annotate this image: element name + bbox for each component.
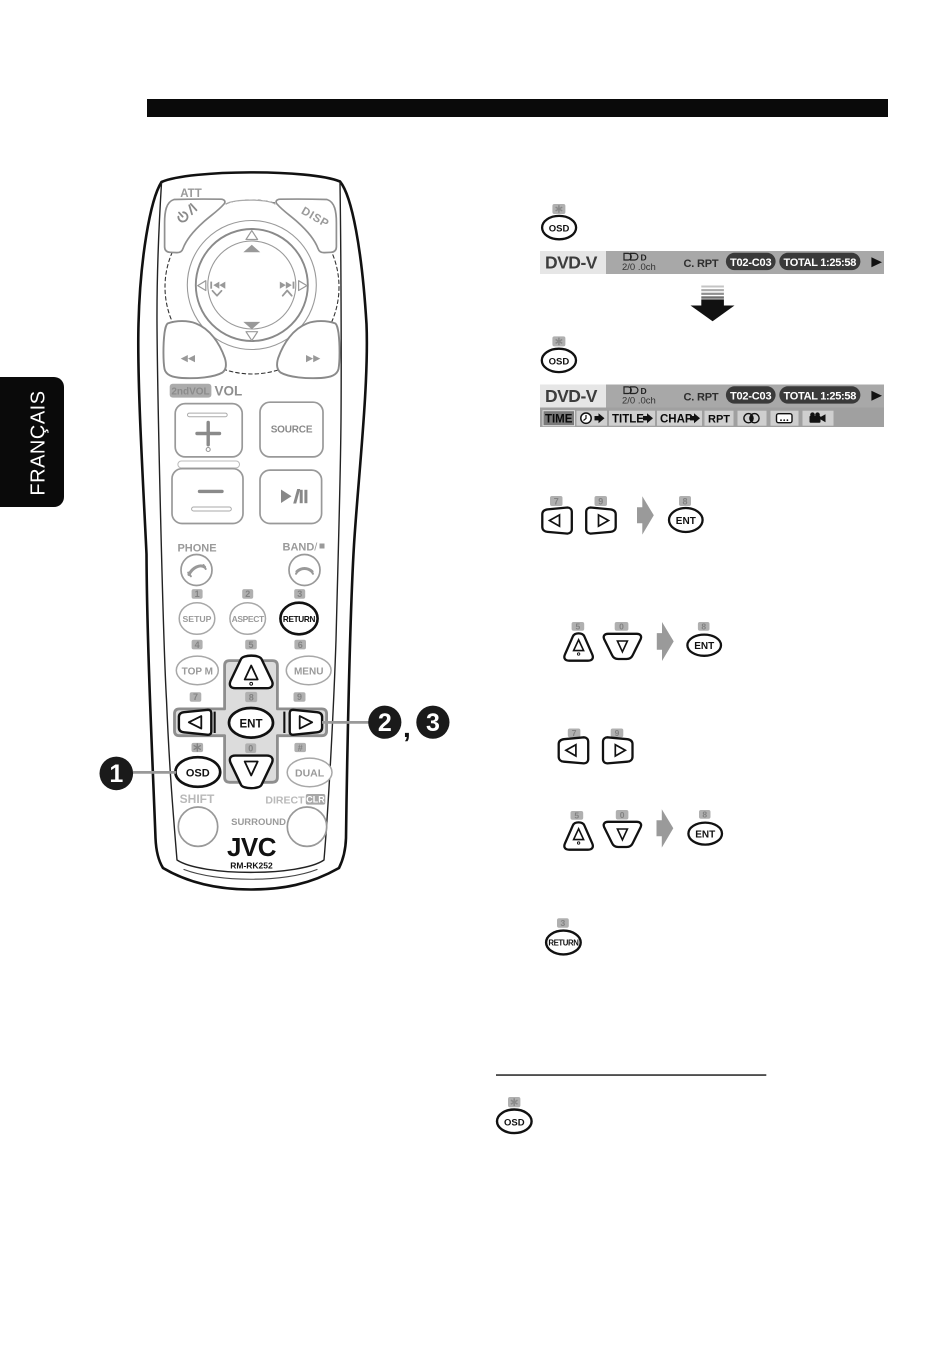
svg-text:ENT: ENT (676, 516, 696, 527)
svg-text:OSD: OSD (549, 356, 570, 367)
svg-text:7: 7 (572, 728, 577, 738)
svg-text:PHONE: PHONE (177, 543, 216, 555)
svg-text:OSD: OSD (504, 1117, 525, 1128)
svg-text:1: 1 (109, 760, 123, 788)
svg-text:BAND/: BAND/ (283, 542, 319, 554)
svg-text:3: 3 (426, 709, 440, 737)
svg-text:SETUP: SETUP (183, 614, 212, 624)
svg-text:T02-C03: T02-C03 (730, 257, 771, 269)
svg-text:TOTAL 1:25:58: TOTAL 1:25:58 (784, 257, 857, 269)
svg-text:ENT: ENT (694, 641, 714, 652)
svg-text:0: 0 (619, 622, 624, 632)
svg-text:TIME: TIME (545, 414, 573, 426)
svg-text:0: 0 (248, 743, 253, 753)
svg-text:0: 0 (620, 810, 625, 820)
svg-text:5: 5 (248, 640, 253, 650)
svg-text:3: 3 (297, 589, 302, 599)
svg-text:RM-RK252: RM-RK252 (230, 861, 273, 871)
svg-text:9: 9 (297, 692, 302, 702)
svg-text:CLR: CLR (306, 795, 325, 805)
svg-text:5: 5 (574, 811, 579, 821)
svg-text:JVC: JVC (227, 832, 277, 862)
svg-text:8: 8 (682, 496, 687, 506)
svg-text:4: 4 (195, 640, 200, 650)
svg-text:2ndVOL: 2ndVOL (171, 387, 209, 398)
svg-text:SHIFT: SHIFT (180, 792, 215, 806)
svg-text:2: 2 (245, 589, 250, 599)
svg-text:7: 7 (554, 496, 559, 506)
svg-text:C. RPT: C. RPT (684, 258, 719, 270)
svg-text:SURROUND: SURROUND (231, 817, 286, 828)
svg-text:RPT: RPT (708, 414, 730, 426)
svg-text:2: 2 (378, 709, 392, 737)
svg-text:OSD: OSD (186, 768, 210, 780)
svg-text:DVD-V: DVD-V (545, 253, 598, 273)
svg-text:8: 8 (702, 810, 707, 820)
svg-text:DIRECT: DIRECT (265, 795, 305, 807)
svg-text:ENT: ENT (240, 718, 263, 730)
svg-text:#: # (298, 743, 303, 753)
svg-text:7: 7 (193, 692, 198, 702)
svg-text:TOP M: TOP M (182, 666, 213, 677)
svg-text:D: D (641, 252, 647, 262)
svg-text:FRANÇAIS: FRANÇAIS (27, 390, 49, 495)
svg-text:9: 9 (598, 496, 603, 506)
svg-text:SOURCE: SOURCE (271, 425, 313, 436)
svg-text:VOL: VOL (215, 384, 243, 399)
svg-text:ASPECT: ASPECT (232, 614, 265, 624)
svg-text:3: 3 (561, 918, 566, 928)
svg-text:8: 8 (701, 622, 706, 632)
svg-text:,: , (403, 712, 411, 743)
svg-text:ENT: ENT (695, 829, 715, 840)
svg-text:MENU: MENU (294, 666, 323, 677)
svg-text:1: 1 (195, 589, 200, 599)
svg-text:DUAL: DUAL (295, 767, 325, 779)
svg-text:CHAP: CHAP (660, 414, 693, 426)
svg-text:RETURN: RETURN (548, 939, 579, 948)
svg-text:2/0 .0ch: 2/0 .0ch (622, 262, 656, 273)
svg-text:5: 5 (576, 622, 581, 632)
svg-text:ATT: ATT (180, 188, 202, 200)
svg-text:9: 9 (615, 728, 620, 738)
svg-text:6: 6 (298, 640, 303, 650)
svg-text:TITLE: TITLE (612, 414, 644, 426)
svg-text:RETURN: RETURN (283, 615, 316, 624)
svg-text:OSD: OSD (549, 224, 570, 235)
svg-text:8: 8 (249, 692, 254, 702)
